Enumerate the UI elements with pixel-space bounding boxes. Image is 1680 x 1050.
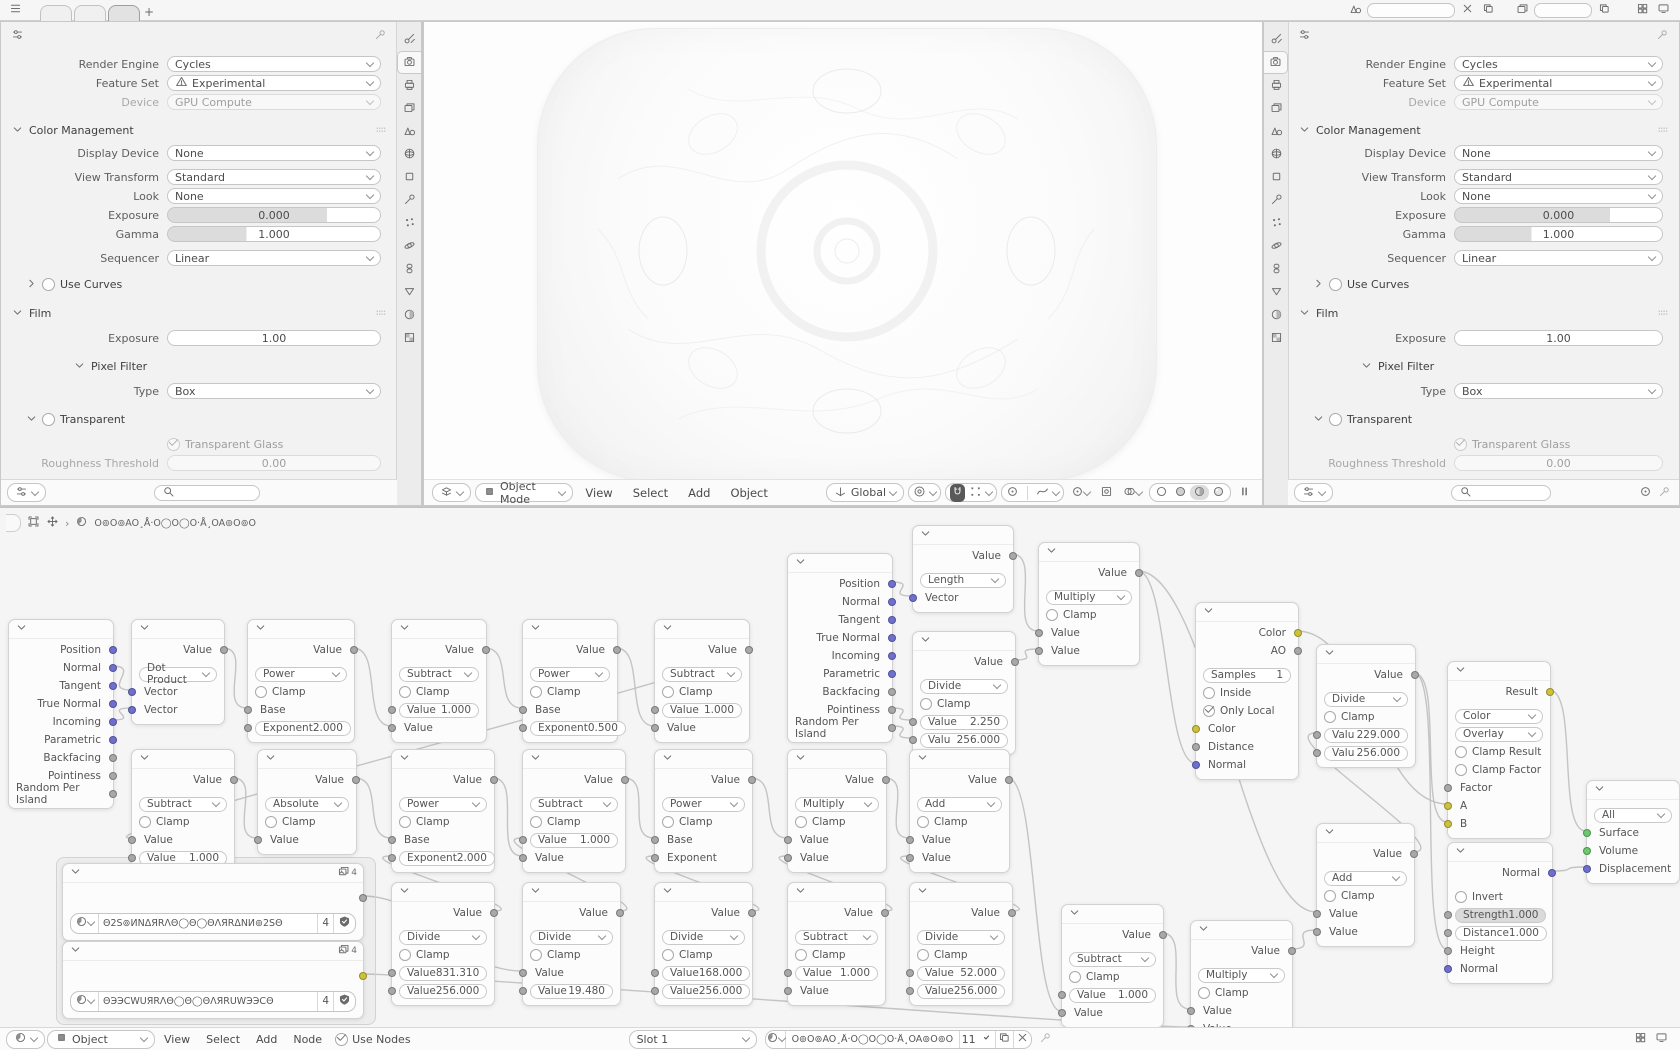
properties-tab-tool[interactable]	[1264, 28, 1288, 51]
node-operation-select[interactable]: Divide	[917, 930, 1005, 945]
use-nodes-checkbox[interactable]	[335, 1033, 348, 1046]
output-socket[interactable]	[1008, 909, 1016, 917]
device-select[interactable]: GPU Compute	[167, 94, 381, 110]
input-socket[interactable]	[1444, 911, 1452, 919]
node-header[interactable]	[910, 883, 1012, 902]
input-socket[interactable]	[388, 724, 396, 732]
menu-node[interactable]: Node	[286, 1033, 329, 1046]
output-socket[interactable]	[109, 664, 117, 672]
node-header[interactable]	[1191, 921, 1292, 940]
node-header[interactable]	[132, 750, 234, 769]
use-nodes-toggle[interactable]: Use Nodes	[335, 1033, 411, 1046]
input-socket[interactable]	[1444, 929, 1452, 937]
subsection-transparent[interactable]: Transparent	[1, 411, 397, 428]
pivot-point-button[interactable]	[908, 483, 941, 502]
collapse-icon[interactable]	[15, 621, 28, 637]
node-checkbox[interactable]	[1069, 971, 1081, 983]
output-socket[interactable]	[109, 754, 117, 762]
node-value-field[interactable]: Exponent2.000	[255, 721, 351, 736]
node-checkbox[interactable]	[1455, 764, 1467, 776]
node-checkbox[interactable]	[1198, 987, 1210, 999]
node-checkbox[interactable]	[1203, 687, 1215, 699]
input-socket[interactable]	[1444, 965, 1452, 973]
drag-grip-icon[interactable]	[374, 306, 387, 322]
close-icon[interactable]	[1013, 1031, 1031, 1048]
node-imgA[interactable]: 4Θ2S⊚ИNΔЯRΛΘ◯Θ◯ΘΛЯRΔNИ⊚2SΘ4	[62, 863, 364, 941]
display-device-select[interactable]: None	[1454, 145, 1663, 161]
node-header[interactable]	[655, 620, 749, 639]
input-socket[interactable]	[909, 594, 917, 602]
input-socket[interactable]	[388, 854, 396, 862]
unlink-icon[interactable]	[1458, 1, 1476, 19]
node-header[interactable]	[1062, 905, 1163, 924]
input-socket[interactable]	[651, 706, 659, 714]
properties-tab-world[interactable]	[1264, 143, 1288, 166]
output-socket[interactable]	[359, 894, 367, 902]
input-socket[interactable]	[1313, 910, 1321, 918]
properties-tab-texture[interactable]	[1264, 327, 1288, 350]
collapse-icon[interactable]	[398, 884, 411, 900]
node-operation-select[interactable]: All	[1594, 808, 1672, 823]
sequencer-select[interactable]: Linear	[1454, 250, 1663, 266]
node-mix[interactable]: ResultColorOverlayClamp ResultClamp Fact…	[1447, 661, 1551, 839]
node-checkbox[interactable]	[399, 949, 411, 961]
input-socket[interactable]	[519, 724, 527, 732]
shading-wireframe-button[interactable]	[1152, 485, 1171, 500]
properties-tab-output[interactable]	[397, 74, 421, 97]
collapse-icon[interactable]	[529, 751, 542, 767]
shading-rendered-button[interactable]	[1209, 485, 1228, 500]
search-input[interactable]	[1451, 485, 1551, 501]
properties-tab-modifiers[interactable]	[397, 189, 421, 212]
node-value-field[interactable]: Value1.000	[662, 703, 742, 718]
copy-icon[interactable]	[1595, 1, 1613, 19]
node-checkbox[interactable]	[139, 816, 151, 828]
node-operation-select[interactable]: Subtract	[1069, 952, 1156, 967]
datablock-name[interactable]: Θ2S⊚ИNΔЯRΛΘ◯Θ◯ΘΛЯRΔNИ⊚2SΘ	[99, 914, 318, 933]
node-header[interactable]	[392, 620, 486, 639]
device-select[interactable]: GPU Compute	[1454, 94, 1663, 110]
menu-select[interactable]: Select	[625, 486, 676, 500]
output-socket[interactable]	[1005, 776, 1013, 784]
output-socket[interactable]	[748, 909, 756, 917]
collapse-icon[interactable]	[69, 865, 82, 881]
output-socket[interactable]	[490, 909, 498, 917]
collapse-icon[interactable]	[916, 751, 929, 767]
menu-select[interactable]: Select	[199, 1033, 247, 1046]
collapse-icon[interactable]	[794, 751, 807, 767]
overlay-toggle-icon[interactable]	[1655, 1031, 1668, 1047]
node-value-field[interactable]: Value168.000	[662, 966, 750, 981]
input-socket[interactable]	[128, 688, 136, 696]
output-socket[interactable]	[1410, 850, 1418, 858]
mode-select[interactable]: Object Mode	[475, 483, 573, 502]
properties-tab-physics[interactable]	[1264, 235, 1288, 258]
render-engine-select[interactable]: Cycles	[1454, 56, 1663, 72]
output-socket[interactable]	[1288, 947, 1296, 955]
sequencer-select[interactable]: Linear	[167, 250, 381, 266]
feature-set-select[interactable]: Experimental	[1454, 75, 1663, 91]
node-checkbox[interactable]	[917, 816, 929, 828]
node-sub4[interactable]: ValueSubtractClampValue1.000Value	[522, 749, 626, 873]
output-socket[interactable]	[888, 580, 896, 588]
copy-icon[interactable]	[1479, 1, 1497, 19]
node-operation-select[interactable]: Length	[920, 573, 1006, 588]
node-operation-select[interactable]: Subtract	[795, 930, 878, 945]
node-value-field[interactable]: Value1.000	[399, 703, 479, 718]
snap-grid-icon[interactable]	[1634, 1031, 1647, 1047]
menu-object[interactable]: Object	[722, 486, 775, 500]
drag-grip-icon[interactable]	[374, 123, 387, 139]
node-header[interactable]	[258, 750, 356, 769]
node-checkbox[interactable]	[795, 816, 807, 828]
node-ao[interactable]: ColorAOSamples1InsideOnly LocalColorDist…	[1195, 602, 1299, 780]
monitor-icon[interactable]	[1654, 1, 1672, 19]
node-operation-select[interactable]: Multiply	[1198, 968, 1285, 983]
node-operation-select[interactable]: Power	[255, 667, 347, 682]
filter-type-select[interactable]: Box	[1454, 383, 1663, 399]
input-socket[interactable]	[1313, 731, 1321, 739]
search-input[interactable]	[154, 485, 260, 501]
input-socket[interactable]	[519, 836, 527, 844]
input-socket[interactable]	[128, 854, 136, 862]
node-dot1[interactable]: ValueDot ProductVectorVector	[131, 619, 225, 725]
node-header[interactable]	[1587, 781, 1679, 800]
output-socket[interactable]	[888, 598, 896, 606]
node-operation-select[interactable]: Multiply	[1046, 590, 1132, 605]
input-socket[interactable]	[519, 706, 527, 714]
node-header[interactable]	[248, 620, 354, 639]
view-transform-select[interactable]: Standard	[167, 169, 381, 185]
fake-user-shield-icon[interactable]	[334, 992, 355, 1011]
collapse-icon[interactable]	[919, 527, 932, 543]
node-operation-select[interactable]: Divide	[920, 679, 1008, 694]
exposure-slider[interactable]: 0.000	[167, 207, 381, 223]
node-operation-select[interactable]: Add	[1324, 871, 1407, 886]
collapse-icon[interactable]	[794, 884, 807, 900]
look-select[interactable]: None	[1454, 188, 1663, 204]
input-socket[interactable]	[1187, 1007, 1195, 1015]
node-header[interactable]	[1317, 645, 1415, 664]
pin-icon[interactable]	[1656, 28, 1669, 44]
input-socket[interactable]	[1313, 749, 1321, 757]
transparent-checkbox[interactable]	[1329, 413, 1342, 426]
transparent-checkbox[interactable]	[42, 413, 55, 426]
gizmos-button[interactable]	[1097, 484, 1116, 501]
output-socket[interactable]	[1159, 931, 1167, 939]
output-socket[interactable]	[888, 634, 896, 642]
properties-tab-tool[interactable]	[397, 28, 421, 51]
input-socket[interactable]	[254, 836, 262, 844]
node-header[interactable]	[788, 554, 892, 573]
node-value-field[interactable]: Valu256.000	[1324, 746, 1408, 761]
properties-tab-material[interactable]	[397, 304, 421, 327]
node-checkbox[interactable]	[1324, 890, 1336, 902]
node-operation-select[interactable]: Divide	[662, 930, 745, 945]
node-header[interactable]	[392, 883, 494, 902]
menu-view[interactable]: View	[157, 1033, 197, 1046]
shading-solid-button[interactable]	[1171, 485, 1190, 500]
node-div1[interactable]: ValueDivideClampValue2.250Valu256.000	[912, 631, 1016, 755]
menu-view[interactable]: View	[577, 486, 620, 500]
scene-selector[interactable]	[1367, 3, 1455, 18]
input-socket[interactable]	[906, 854, 914, 862]
collapse-icon[interactable]	[398, 621, 411, 637]
node-header[interactable]	[523, 883, 620, 902]
transparent-glass-checkbox[interactable]	[167, 438, 180, 451]
add-workspace-button[interactable]: +	[144, 5, 154, 19]
material-sphere-icon[interactable]	[71, 914, 99, 933]
output-socket[interactable]	[748, 776, 756, 784]
node-value-field[interactable]: Value2.250	[920, 715, 1008, 730]
roughness-threshold-field[interactable]: 0.00	[167, 455, 381, 471]
datablock-selector[interactable]: Θ2S⊚ИNΔЯRΛΘ◯Θ◯ΘΛЯRΔNИ⊚2SΘ4	[70, 913, 356, 934]
node-add2[interactable]: ValueAddClampValueValue	[1316, 823, 1415, 947]
output-socket[interactable]	[1294, 629, 1302, 637]
node-header[interactable]: 4	[63, 942, 363, 961]
output-socket[interactable]	[745, 646, 753, 654]
output-socket[interactable]	[888, 652, 896, 660]
node-header[interactable]	[132, 620, 224, 639]
viewlayer-selector[interactable]	[1534, 3, 1592, 18]
output-socket[interactable]	[352, 776, 360, 784]
output-socket[interactable]	[616, 909, 624, 917]
node-sub6[interactable]: ValueSubtractClampValue1.000Value	[1061, 904, 1164, 1028]
node-operation-select[interactable]: Subtract	[530, 797, 618, 812]
copy-icon[interactable]	[995, 1031, 1013, 1048]
node-div5[interactable]: ValueDivideClampValue168.000Value256.000	[654, 882, 753, 1006]
node-pow2[interactable]: ValuePowerClampBaseExponent0.500	[522, 619, 618, 743]
output-socket[interactable]	[888, 706, 896, 714]
node-operation-select[interactable]: Power	[399, 797, 487, 812]
node-value-field[interactable]: Samples1	[1203, 668, 1291, 683]
material-name[interactable]: O⊚O⊚AO¸Å·O◯O◯O·Å¸OA⊚O⊚O	[786, 1034, 960, 1045]
node-sub2[interactable]: ValueSubtractClampValue1.000Value	[654, 619, 750, 743]
shading-material-button[interactable]	[1190, 485, 1209, 500]
output-socket[interactable]	[881, 909, 889, 917]
input-socket[interactable]	[651, 724, 659, 732]
node-checkbox[interactable]	[530, 816, 542, 828]
properties-tab-constraints[interactable]	[1264, 258, 1288, 281]
node-value-field[interactable]: Exponent0.500	[530, 721, 626, 736]
shader-node-editor[interactable]: PositionNormalTangentTrue NormalIncoming…	[0, 507, 1680, 1050]
fake-user-shield-icon[interactable]	[334, 914, 355, 933]
subsection-transparent[interactable]: Transparent	[1288, 411, 1679, 428]
menu-add[interactable]: Add	[249, 1033, 284, 1046]
use-curves-toggle[interactable]: Use Curves	[1, 276, 397, 293]
properties-tab-particles[interactable]	[1264, 212, 1288, 235]
input-socket[interactable]	[1058, 1009, 1066, 1017]
pause-render-button[interactable]	[1235, 484, 1254, 501]
input-socket[interactable]	[388, 836, 396, 844]
node-pow1[interactable]: ValuePowerClampBaseExponent2.000	[247, 619, 355, 743]
film-exposure-field[interactable]: 1.00	[167, 330, 381, 346]
input-socket[interactable]	[1444, 947, 1452, 955]
node-sub3[interactable]: ValueSubtractClampValueValue1.000	[131, 749, 235, 873]
output-socket[interactable]	[888, 670, 896, 678]
output-socket[interactable]	[109, 700, 117, 708]
input-socket[interactable]	[1444, 820, 1452, 828]
node-checkbox[interactable]	[1455, 746, 1467, 758]
input-socket[interactable]	[128, 706, 136, 714]
properties-tab-constraints[interactable]	[397, 258, 421, 281]
input-socket[interactable]	[651, 987, 659, 995]
use-curves-toggle[interactable]: Use Curves	[1288, 276, 1679, 293]
node-value-field[interactable]: Valu229.000	[1324, 728, 1408, 743]
pin-icon[interactable]	[1039, 1031, 1052, 1047]
collapse-icon[interactable]	[398, 751, 411, 767]
node-header[interactable]	[655, 750, 752, 769]
node-bump[interactable]: NormalInvertStrength1.000Distance1.000He…	[1447, 842, 1553, 984]
node-imgB[interactable]: 4ΘЭЭCWUЯRΛΘ◯Θ◯ΘΛЯRUWЭЭCΘ4	[62, 941, 364, 1019]
input-socket[interactable]	[519, 987, 527, 995]
node-header[interactable]	[1039, 543, 1139, 562]
input-socket[interactable]	[519, 969, 527, 977]
node-checkbox[interactable]	[662, 816, 674, 828]
filter-type-select[interactable]: Box	[167, 383, 381, 399]
input-socket[interactable]	[784, 969, 792, 977]
node-geo1[interactable]: PositionNormalTangentTrue NormalIncoming…	[8, 619, 114, 809]
shader-context-select[interactable]: Object	[47, 1030, 155, 1049]
node-operation-select[interactable]: Overlay	[1455, 727, 1543, 742]
input-socket[interactable]	[388, 987, 396, 995]
node-operation-select[interactable]: Divide	[1324, 692, 1408, 707]
node-operation-select[interactable]: Power	[662, 797, 745, 812]
node-value-field[interactable]: Value831.310	[399, 966, 487, 981]
gamma-slider[interactable]: 1.000	[167, 226, 381, 242]
node-mul2[interactable]: ValueMultiplyClampValueValue	[787, 749, 887, 873]
node-header[interactable]	[910, 750, 1009, 769]
node-operation-select[interactable]: Subtract	[139, 797, 227, 812]
fake-user-shield-icon[interactable]	[977, 1031, 995, 1048]
pin-icon[interactable]	[374, 28, 387, 44]
node-header[interactable]	[392, 750, 494, 769]
node-pow3[interactable]: ValuePowerClampBaseExponent2.000	[391, 749, 495, 873]
user-count[interactable]: 11	[959, 1031, 977, 1048]
node-operation-select[interactable]: Subtract	[399, 667, 479, 682]
collapse-icon[interactable]	[1068, 906, 1081, 922]
collapse-icon[interactable]	[661, 621, 674, 637]
view-transform-select[interactable]: Standard	[1454, 169, 1663, 185]
node-abs1[interactable]: ValueAbsoluteClampValue	[257, 749, 357, 855]
properties-tab-physics[interactable]	[397, 235, 421, 258]
roughness-threshold-field[interactable]: 0.00	[1454, 455, 1663, 471]
node-operation-select[interactable]: Color	[1455, 709, 1543, 724]
node-sub1[interactable]: ValueSubtractClampValue1.000Value	[391, 619, 487, 743]
node-div3[interactable]: ValueDivideClampValue831.310Value256.000	[391, 882, 495, 1006]
input-socket[interactable]	[651, 854, 659, 862]
properties-tab-data[interactable]	[1264, 281, 1288, 304]
input-socket[interactable]	[244, 706, 252, 714]
input-socket[interactable]	[388, 969, 396, 977]
node-value-field[interactable]: Valu256.000	[920, 733, 1008, 748]
input-socket[interactable]	[906, 836, 914, 844]
node-header[interactable]	[788, 750, 886, 769]
node-operation-select[interactable]: Absolute	[265, 797, 349, 812]
collapse-icon[interactable]	[529, 621, 542, 637]
node-value-field[interactable]: Value256.000	[917, 984, 1005, 999]
output-socket[interactable]	[888, 616, 896, 624]
output-socket[interactable]	[109, 772, 117, 780]
output-socket[interactable]	[230, 776, 238, 784]
input-socket[interactable]	[128, 836, 136, 844]
collapse-icon[interactable]	[916, 884, 929, 900]
collapse-icon[interactable]	[254, 621, 267, 637]
output-socket[interactable]	[1135, 569, 1143, 577]
output-socket[interactable]	[109, 736, 117, 744]
user-count[interactable]: 4	[318, 914, 334, 933]
input-socket[interactable]	[1444, 802, 1452, 810]
input-socket[interactable]	[1583, 847, 1591, 855]
filter-icon[interactable]	[1639, 485, 1652, 501]
node-value-field[interactable]: Distance1.000	[1455, 926, 1547, 941]
node-len1[interactable]: ValueLengthVector	[912, 525, 1014, 613]
properties-tab-object[interactable]	[397, 166, 421, 189]
input-socket[interactable]	[1192, 761, 1200, 769]
node-checkbox[interactable]	[795, 949, 807, 961]
node-geo2[interactable]: PositionNormalTangentTrue NormalIncoming…	[787, 553, 893, 743]
transform-orientation-select[interactable]: Global	[826, 483, 904, 502]
node-header[interactable]: 4	[63, 864, 363, 883]
output-socket[interactable]	[109, 682, 117, 690]
node-header[interactable]	[1196, 603, 1298, 622]
node-operation-select[interactable]: Divide	[530, 930, 613, 945]
input-socket[interactable]	[1035, 629, 1043, 637]
use-curves-checkbox[interactable]	[42, 278, 55, 291]
collapse-icon[interactable]	[138, 751, 151, 767]
drag-grip-icon[interactable]	[1656, 306, 1669, 322]
properties-tab-render[interactable]	[1264, 51, 1288, 74]
section-film[interactable]: Film	[1288, 305, 1679, 322]
node-checkbox[interactable]	[399, 686, 411, 698]
node-header[interactable]	[788, 883, 885, 902]
node-pow4[interactable]: ValuePowerClampBaseExponent	[654, 749, 753, 873]
output-socket[interactable]	[490, 776, 498, 784]
input-socket[interactable]	[784, 854, 792, 862]
node-value-field[interactable]: Exponent2.000	[399, 851, 495, 866]
editor-type-button[interactable]	[7, 483, 46, 502]
node-checkbox[interactable]	[265, 816, 277, 828]
editor-type-button[interactable]	[432, 483, 471, 502]
node-operation-select[interactable]: Subtract	[662, 667, 742, 682]
menu-add[interactable]: Add	[680, 486, 718, 500]
node-checkbox[interactable]	[917, 949, 929, 961]
collapse-icon[interactable]	[264, 751, 277, 767]
node-checkbox[interactable]	[530, 686, 542, 698]
transparent-glass-checkbox[interactable]	[1454, 438, 1467, 451]
output-socket[interactable]	[1548, 869, 1556, 877]
node-operation-select[interactable]: Divide	[399, 930, 487, 945]
node-value-field[interactable]: Strength1.000	[1455, 908, 1546, 923]
properties-tab-world[interactable]	[397, 143, 421, 166]
node-header[interactable]	[9, 620, 113, 639]
node-header[interactable]	[913, 526, 1013, 545]
node-checkbox[interactable]	[662, 949, 674, 961]
exposure-slider[interactable]: 0.000	[1454, 207, 1663, 223]
editor-type-button[interactable]	[6, 1030, 45, 1049]
subsection-pixel-filter[interactable]: Pixel Filter	[1, 358, 397, 375]
output-socket[interactable]	[1411, 671, 1419, 679]
properties-tab-object[interactable]	[1264, 166, 1288, 189]
output-socket[interactable]	[888, 688, 896, 696]
input-socket[interactable]	[651, 836, 659, 844]
input-socket[interactable]	[906, 987, 914, 995]
workspace-tab-3[interactable]	[108, 5, 140, 21]
datablock-selector[interactable]: ΘЭЭCWUЯRΛΘ◯Θ◯ΘΛЯRUWЭЭCΘ4	[70, 991, 356, 1012]
node-operation-select[interactable]: Power	[530, 667, 610, 682]
input-socket[interactable]	[784, 987, 792, 995]
collapse-icon[interactable]	[1045, 544, 1058, 560]
